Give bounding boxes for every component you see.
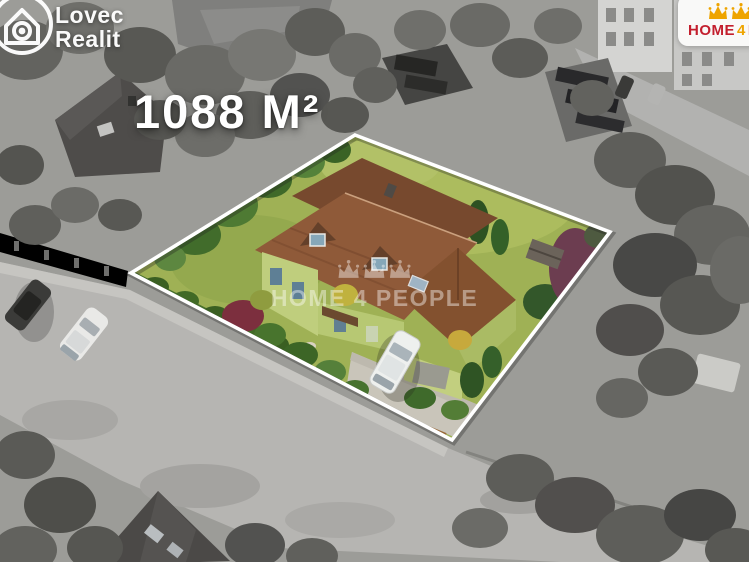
agency-logo: Lovec Realit [0,0,170,84]
partner-word-home: HOME [688,22,735,39]
area-label: 1088 M² [134,84,320,139]
house-scope-icon [0,0,57,59]
partner-word-4: 4 [735,22,748,39]
agency-name-line1: Lovec [55,3,124,27]
partner-logo-text: HOME4PEOPLE [688,22,749,39]
crowns-icon [708,3,749,20]
partner-logo-card: HOME4PEOPLE [678,0,749,46]
aerial-listing-photo: 1088 M² Lovec Realit [0,0,749,562]
agency-name-line2: Realit [55,27,124,51]
aerial-scene [0,0,749,562]
